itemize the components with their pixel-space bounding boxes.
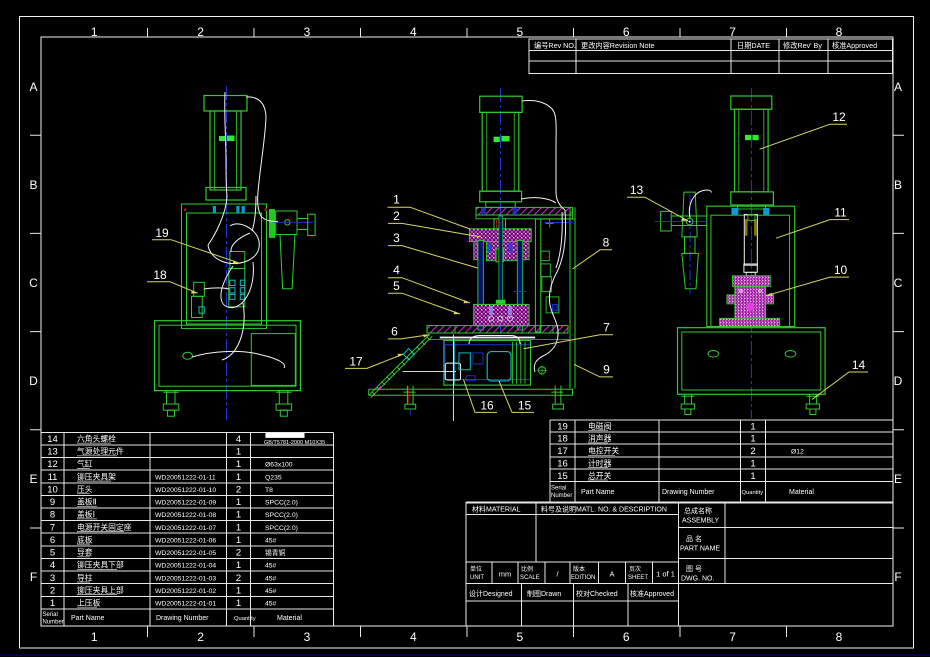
- svg-text:1: 1: [750, 434, 755, 445]
- svg-text:Drawing Number: Drawing Number: [156, 615, 209, 622]
- svg-text:锡青铜: 锡青铜: [265, 548, 286, 557]
- svg-text:6: 6: [623, 630, 630, 644]
- svg-text:铆压夹具上部: 铆压夹具上部: [77, 585, 124, 595]
- svg-text:设计Designed: 设计Designed: [469, 589, 513, 598]
- svg-text:总成名称: 总成名称: [684, 506, 712, 515]
- svg-text:17: 17: [349, 355, 363, 369]
- svg-text:9: 9: [603, 363, 610, 377]
- svg-text:料号及说明MATL. NO. & DESCRIPTION: 料号及说明MATL. NO. & DESCRIPTION: [541, 505, 667, 514]
- svg-text:2: 2: [50, 585, 55, 596]
- svg-text:WD20051222-01-10: WD20051222-01-10: [155, 487, 216, 494]
- svg-text:盖板Ⅱ: 盖板Ⅱ: [77, 497, 97, 507]
- svg-text:SCALE: SCALE: [520, 575, 540, 581]
- svg-text:材料MATERIAL: 材料MATERIAL: [472, 505, 521, 514]
- svg-text:17: 17: [557, 446, 568, 457]
- svg-text:电源开关固定座: 电源开关固定座: [77, 522, 132, 532]
- svg-text:A: A: [29, 80, 37, 94]
- svg-text:铆压夹具架: 铆压夹具架: [77, 471, 116, 481]
- svg-text:D: D: [894, 374, 903, 388]
- svg-text:WD20051222-01-03: WD20051222-01-03: [155, 575, 216, 582]
- svg-text:WD20051222-01-04: WD20051222-01-04: [155, 563, 216, 570]
- svg-text:WD20051222-01-01: WD20051222-01-01: [155, 601, 216, 608]
- svg-text:14: 14: [47, 434, 58, 445]
- svg-text:C: C: [894, 276, 903, 290]
- svg-text:制图Drawn: 制图Drawn: [527, 589, 561, 598]
- svg-text:2: 2: [236, 573, 241, 584]
- svg-text:PART NAME: PART NAME: [680, 546, 720, 553]
- svg-text:2: 2: [236, 485, 241, 496]
- svg-text:Material: Material: [277, 615, 302, 622]
- svg-text:1: 1: [236, 585, 241, 596]
- svg-text:Serial: Serial: [551, 486, 566, 492]
- svg-text:1: 1: [236, 598, 241, 609]
- svg-text:15: 15: [518, 399, 532, 413]
- svg-text:更改内容Revision Note: 更改内容Revision Note: [581, 41, 655, 50]
- svg-text:mm: mm: [499, 570, 512, 579]
- svg-text:日期DATE: 日期DATE: [737, 41, 770, 50]
- svg-text:19: 19: [155, 226, 169, 240]
- svg-text:导套: 导套: [77, 547, 93, 557]
- svg-text:45#: 45#: [265, 537, 277, 544]
- svg-text:Number: Number: [43, 620, 64, 626]
- svg-text:WD20051222-01-06: WD20051222-01-06: [155, 537, 216, 544]
- svg-text:单位: 单位: [470, 565, 482, 573]
- svg-text:六角头螺栓: 六角头螺栓: [77, 434, 116, 444]
- svg-text:总开关: 总开关: [588, 470, 612, 480]
- svg-text:16: 16: [480, 399, 494, 413]
- svg-text:SPCC(2.0): SPCC(2.0): [265, 500, 298, 507]
- svg-text:气缸: 气缸: [77, 459, 93, 469]
- svg-text:3: 3: [393, 231, 400, 245]
- svg-text:2: 2: [750, 446, 755, 457]
- svg-text:1: 1: [236, 497, 241, 508]
- svg-text:品 名: 品 名: [686, 534, 702, 543]
- svg-text:14: 14: [852, 358, 866, 372]
- svg-text:计时器: 计时器: [588, 458, 612, 468]
- svg-text:B: B: [29, 178, 37, 192]
- svg-text:Serial: Serial: [43, 612, 58, 618]
- svg-text:1: 1: [750, 458, 755, 469]
- svg-text:19: 19: [557, 422, 568, 433]
- svg-text:2: 2: [197, 25, 204, 39]
- svg-text:UNIT: UNIT: [470, 575, 484, 581]
- svg-text:13: 13: [630, 183, 644, 197]
- svg-text:15: 15: [557, 471, 568, 482]
- svg-text:1: 1: [236, 472, 241, 483]
- svg-text:7: 7: [50, 522, 55, 533]
- svg-text:5: 5: [393, 279, 400, 293]
- svg-text:13: 13: [47, 447, 58, 458]
- svg-text:1: 1: [236, 522, 241, 533]
- svg-text:5: 5: [516, 630, 523, 644]
- svg-text:Quantity: Quantity: [234, 616, 256, 622]
- svg-text:6: 6: [50, 535, 55, 546]
- svg-text:WD20051222-01-05: WD20051222-01-05: [155, 550, 216, 557]
- svg-text:4: 4: [410, 25, 417, 39]
- svg-text:SPCC(2.0): SPCC(2.0): [265, 512, 298, 519]
- svg-text:版本: 版本: [573, 565, 585, 573]
- svg-text:18: 18: [557, 434, 568, 445]
- svg-text:45#: 45#: [265, 601, 277, 608]
- svg-text:GB/T5781-2000 M10X35: GB/T5781-2000 M10X35: [264, 440, 325, 446]
- svg-text:E: E: [29, 472, 37, 486]
- svg-text:上压板: 上压板: [77, 598, 101, 608]
- svg-text:5: 5: [50, 548, 55, 559]
- svg-text:压头: 压头: [77, 484, 93, 494]
- svg-text:Ø63x100: Ø63x100: [265, 462, 293, 469]
- svg-text:18: 18: [153, 268, 167, 282]
- svg-text:7: 7: [603, 321, 610, 335]
- svg-text:4: 4: [236, 434, 241, 445]
- svg-text:Material: Material: [789, 489, 814, 496]
- svg-text:SPCC(2.0): SPCC(2.0): [265, 525, 298, 532]
- svg-text:C: C: [29, 276, 38, 290]
- svg-text:4: 4: [410, 630, 417, 644]
- svg-text:1: 1: [236, 447, 241, 458]
- svg-text:8: 8: [836, 25, 843, 39]
- svg-text:3: 3: [304, 630, 311, 644]
- svg-text:消声器: 消声器: [588, 433, 612, 443]
- svg-text:1: 1: [236, 459, 241, 470]
- svg-text:SHEET: SHEET: [628, 575, 648, 581]
- svg-text:2: 2: [393, 209, 400, 223]
- svg-text:气源处理元件: 气源处理元件: [77, 446, 124, 456]
- svg-text:A: A: [609, 570, 614, 579]
- svg-text:9: 9: [50, 497, 55, 508]
- svg-text:2: 2: [236, 548, 241, 559]
- svg-text:45#: 45#: [265, 563, 277, 570]
- svg-text:B: B: [894, 178, 902, 192]
- svg-text:3: 3: [50, 573, 55, 584]
- svg-text:1: 1: [50, 598, 55, 609]
- svg-text:8: 8: [50, 510, 55, 521]
- svg-text:图 号: 图 号: [686, 565, 702, 573]
- svg-text:导柱: 导柱: [77, 572, 93, 582]
- svg-text:编号Rev NO.: 编号Rev NO.: [534, 41, 576, 50]
- svg-text:3: 3: [304, 25, 311, 39]
- svg-text:E: E: [894, 472, 902, 486]
- svg-text:8: 8: [603, 236, 610, 250]
- svg-text:Ø12: Ø12: [791, 449, 804, 456]
- svg-text:DWG. NO.: DWG. NO.: [681, 576, 714, 583]
- svg-text:10: 10: [47, 485, 58, 496]
- svg-text:1: 1: [393, 193, 400, 207]
- svg-text:1: 1: [750, 471, 755, 482]
- svg-text:16: 16: [557, 458, 568, 469]
- svg-text:ASSEMBLY: ASSEMBLY: [682, 518, 720, 525]
- svg-text:WD20051222-01-08: WD20051222-01-08: [155, 512, 216, 519]
- svg-text:核准Approved: 核准Approved: [630, 589, 674, 598]
- svg-text:Drawing Number: Drawing Number: [662, 489, 715, 496]
- svg-text:10: 10: [834, 263, 848, 277]
- svg-text:Part Name: Part Name: [581, 489, 615, 496]
- svg-text:修改Rev' By: 修改Rev' By: [783, 41, 822, 50]
- svg-text:核准Approved: 核准Approved: [832, 41, 877, 50]
- svg-text:1: 1: [750, 422, 755, 433]
- svg-text:1 of 1: 1 of 1: [656, 570, 675, 579]
- svg-text:12: 12: [47, 459, 58, 470]
- svg-text:1: 1: [91, 630, 98, 644]
- svg-text:6: 6: [391, 325, 398, 339]
- svg-text:电磁阀: 电磁阀: [588, 421, 612, 431]
- svg-text:11: 11: [48, 472, 58, 483]
- svg-text:底板: 底板: [77, 534, 93, 544]
- svg-text:Q235: Q235: [265, 474, 282, 481]
- svg-text:6: 6: [623, 25, 630, 39]
- svg-text:5: 5: [516, 25, 523, 39]
- svg-text:Part Name: Part Name: [71, 615, 105, 622]
- svg-text:4: 4: [393, 263, 400, 277]
- svg-text:F: F: [894, 570, 901, 584]
- svg-text:7: 7: [729, 630, 736, 644]
- svg-text:校对Checked: 校对Checked: [576, 589, 618, 598]
- svg-text:F: F: [30, 570, 37, 584]
- svg-text:2: 2: [197, 630, 204, 644]
- svg-text:45#: 45#: [265, 588, 277, 595]
- svg-text:8: 8: [836, 630, 843, 644]
- svg-text:45#: 45#: [265, 575, 277, 582]
- svg-text:12: 12: [832, 110, 846, 124]
- svg-text:盖板Ⅰ: 盖板Ⅰ: [77, 509, 95, 519]
- svg-text:4: 4: [50, 560, 55, 571]
- svg-text:Quantity: Quantity: [742, 490, 764, 496]
- svg-text:A: A: [894, 80, 902, 94]
- svg-text:7: 7: [729, 25, 736, 39]
- svg-text:页次: 页次: [629, 565, 641, 573]
- svg-text:D: D: [29, 374, 38, 388]
- svg-text:Number: Number: [551, 493, 572, 499]
- svg-text:比例: 比例: [521, 565, 533, 573]
- svg-text:1: 1: [91, 25, 98, 39]
- svg-text:1: 1: [236, 510, 241, 521]
- svg-text:铆压夹具下部: 铆压夹具下部: [77, 560, 124, 570]
- svg-text:电控开关: 电控开关: [588, 446, 619, 456]
- svg-text:WD20051222-01-09: WD20051222-01-09: [155, 500, 216, 507]
- svg-text:11: 11: [834, 206, 847, 220]
- svg-text:EDITION: EDITION: [571, 575, 595, 581]
- svg-text:WD20051222-01-11: WD20051222-01-11: [155, 474, 216, 481]
- svg-text:WD20051222-01-07: WD20051222-01-07: [155, 525, 216, 532]
- svg-text:T8: T8: [265, 487, 273, 494]
- svg-text:WD20051222-01-02: WD20051222-01-02: [155, 588, 216, 595]
- svg-text:1: 1: [236, 560, 241, 571]
- svg-text:1: 1: [236, 535, 241, 546]
